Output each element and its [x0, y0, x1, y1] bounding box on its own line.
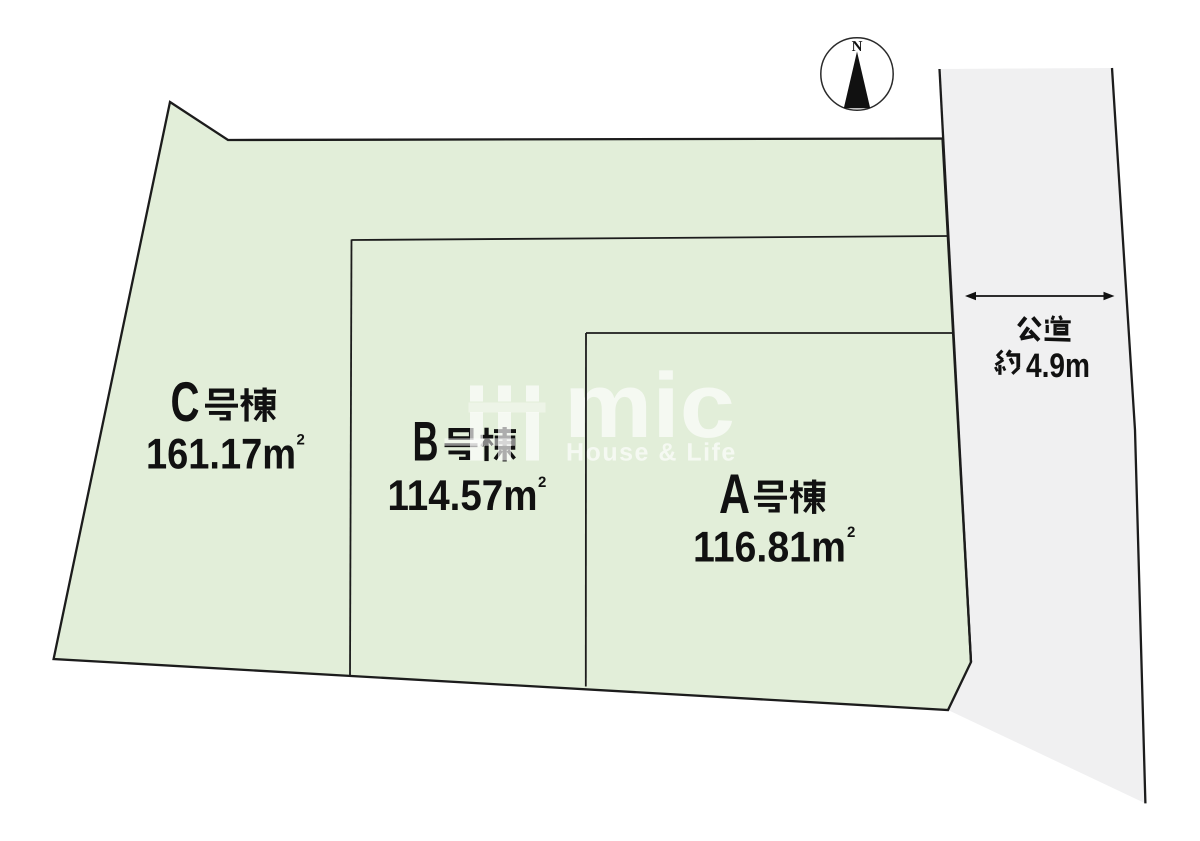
- svg-text:A: A: [719, 462, 750, 525]
- svg-text:114.57m: 114.57m: [388, 472, 538, 520]
- svg-text:2: 2: [538, 474, 546, 491]
- svg-text:B: B: [413, 410, 439, 473]
- svg-text:116.81m: 116.81m: [693, 524, 846, 572]
- svg-text:161.17m: 161.17m: [146, 431, 296, 479]
- svg-text:2: 2: [847, 524, 855, 541]
- svg-text:2: 2: [297, 432, 305, 449]
- svg-text:4.9m: 4.9m: [1026, 347, 1090, 385]
- svg-text:C: C: [171, 370, 200, 433]
- svg-text:House & Life: House & Life: [566, 439, 737, 467]
